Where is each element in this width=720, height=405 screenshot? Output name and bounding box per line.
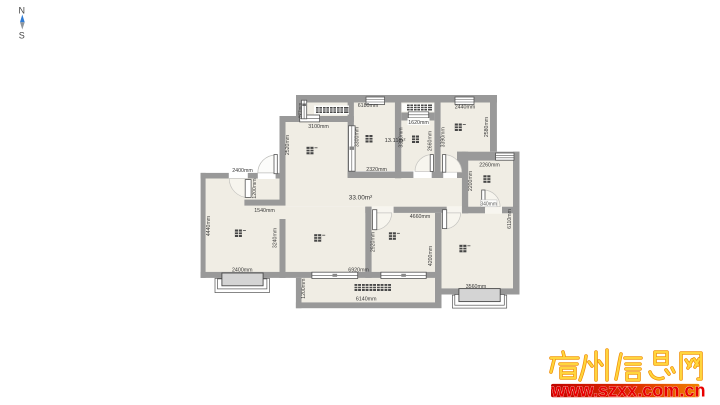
svg-text:S: S [19, 31, 25, 41]
svg-text:3100mm: 3100mm [308, 124, 329, 130]
svg-text:4660mm: 4660mm [410, 214, 431, 220]
svg-text:2400mm: 2400mm [232, 268, 253, 274]
svg-text:6180mm: 6180mm [358, 103, 379, 109]
svg-text:2440mm: 2440mm [455, 105, 476, 111]
svg-text:N: N [19, 6, 26, 16]
svg-text:3390mm: 3390mm [441, 127, 447, 147]
svg-text:3390mm: 3390mm [399, 127, 405, 147]
svg-text:2320mm: 2320mm [366, 167, 387, 173]
svg-text:1200mm: 1200mm [301, 279, 307, 299]
svg-text:4440mm: 4440mm [206, 216, 212, 236]
svg-text:2260mm: 2260mm [479, 162, 500, 168]
svg-text:977mm: 977mm [298, 103, 303, 118]
svg-text:340mm: 340mm [480, 202, 497, 208]
svg-text:www.szxx.com.cn: www.szxx.com.cn [551, 380, 706, 401]
svg-text:33.00m²: 33.00m² [349, 194, 372, 201]
svg-text:1540mm: 1540mm [254, 208, 275, 214]
svg-text:3560mm: 3560mm [466, 284, 487, 290]
svg-text:2400mm: 2400mm [232, 168, 253, 174]
svg-text:6920mm: 6920mm [348, 267, 369, 273]
svg-text:3240mm: 3240mm [273, 228, 279, 248]
svg-text:2660mm: 2660mm [428, 131, 434, 151]
svg-text:6110mm: 6110mm [507, 209, 513, 229]
svg-text:3300mm: 3300mm [355, 127, 361, 147]
svg-text:2580mm: 2580mm [484, 117, 490, 137]
svg-text:2200mm: 2200mm [468, 171, 474, 191]
svg-text:4200mm: 4200mm [428, 246, 434, 266]
svg-text:6140mm: 6140mm [356, 297, 377, 303]
svg-text:1200mm: 1200mm [252, 178, 258, 198]
svg-text:2520mm: 2520mm [285, 135, 291, 155]
svg-text:2920mm: 2920mm [370, 232, 376, 252]
svg-text:1620mm: 1620mm [408, 120, 429, 126]
